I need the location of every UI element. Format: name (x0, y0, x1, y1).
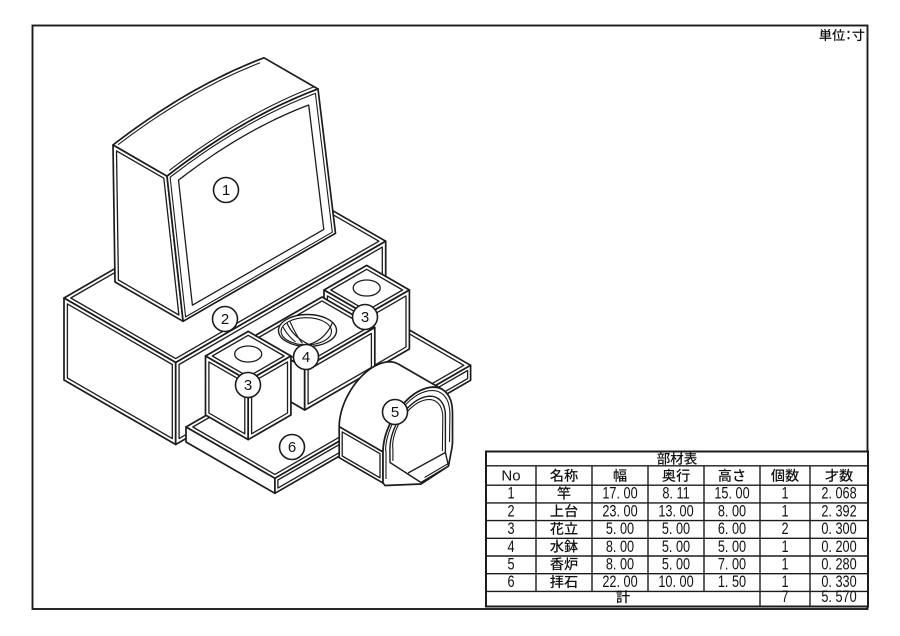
svg-text:5. 00: 5. 00 (662, 538, 690, 556)
svg-text:3: 3 (244, 377, 252, 394)
svg-text:10. 00: 10. 00 (658, 574, 693, 592)
svg-text:2: 2 (781, 521, 788, 539)
svg-text:17. 00: 17. 00 (602, 485, 637, 503)
svg-text:5. 570: 5. 570 (821, 589, 856, 607)
svg-text:15. 00: 15. 00 (714, 485, 749, 503)
svg-text:13. 00: 13. 00 (658, 503, 693, 521)
svg-text:1: 1 (781, 538, 788, 556)
svg-text:6. 00: 6. 00 (718, 521, 746, 539)
svg-text:8. 00: 8. 00 (606, 538, 634, 556)
svg-text:23. 00: 23. 00 (602, 503, 637, 521)
svg-text:0. 300: 0. 300 (821, 521, 856, 539)
svg-text:1: 1 (781, 556, 788, 574)
svg-text:8. 00: 8. 00 (718, 503, 746, 521)
svg-text:6: 6 (507, 574, 514, 592)
svg-text:8. 00: 8. 00 (606, 556, 634, 574)
svg-text:2: 2 (221, 311, 229, 328)
svg-text:8. 11: 8. 11 (662, 485, 689, 503)
svg-text:7: 7 (781, 589, 788, 607)
svg-text:5: 5 (391, 404, 399, 421)
svg-text:1: 1 (507, 485, 514, 503)
svg-text:1. 50: 1. 50 (718, 574, 746, 592)
svg-text:No: No (501, 468, 520, 485)
svg-text:5. 00: 5. 00 (662, 556, 690, 574)
svg-text:2. 068: 2. 068 (821, 485, 856, 503)
svg-text:5. 00: 5. 00 (662, 521, 690, 539)
svg-text:22. 00: 22. 00 (602, 574, 637, 592)
svg-text:0. 200: 0. 200 (821, 538, 856, 556)
svg-text:3: 3 (507, 521, 514, 539)
svg-text:1: 1 (781, 485, 788, 503)
svg-text:2. 392: 2. 392 (821, 503, 856, 521)
svg-text:3: 3 (361, 309, 369, 326)
svg-text:1: 1 (781, 503, 788, 521)
svg-text:6: 6 (288, 439, 296, 456)
svg-text:5: 5 (507, 556, 514, 574)
svg-text:0. 280: 0. 280 (821, 556, 856, 574)
svg-text:2: 2 (507, 503, 514, 521)
svg-text:4: 4 (302, 349, 310, 366)
svg-text:7. 00: 7. 00 (718, 556, 746, 574)
svg-text:4: 4 (507, 538, 514, 556)
svg-text:1: 1 (222, 182, 230, 199)
svg-text:5. 00: 5. 00 (606, 521, 634, 539)
svg-text:5. 00: 5. 00 (718, 538, 746, 556)
